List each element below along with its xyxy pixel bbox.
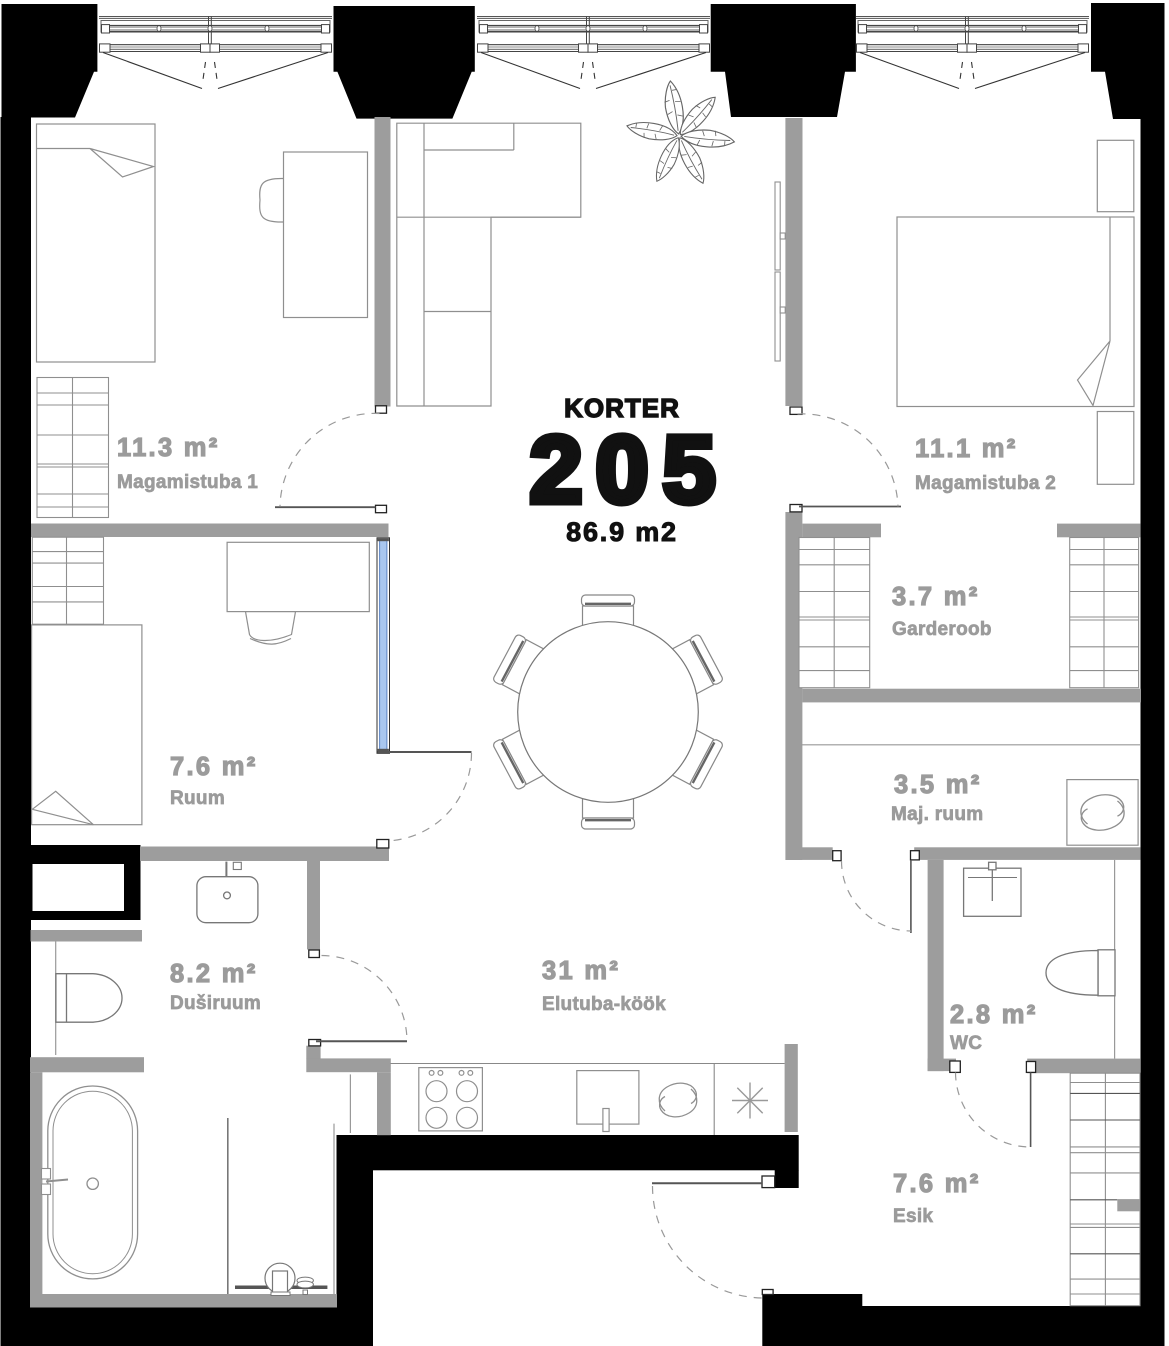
svg-text:Ruum: Ruum (170, 788, 225, 809)
svg-text:31 m²: 31 m² (542, 957, 620, 985)
svg-text:0: 0 (596, 417, 649, 523)
svg-text:7.6 m²: 7.6 m² (893, 1170, 981, 1198)
svg-text:2.8 m²: 2.8 m² (950, 1001, 1038, 1029)
svg-text:Maj. ruum: Maj. ruum (891, 804, 983, 825)
svg-text:5: 5 (663, 417, 716, 523)
svg-text:Duširuum: Duširuum (170, 993, 261, 1014)
svg-text:7.6 m²: 7.6 m² (170, 753, 258, 781)
svg-text:11.3 m²: 11.3 m² (117, 434, 220, 462)
svg-text:Magamistuba 2: Magamistuba 2 (915, 473, 1056, 494)
svg-text:3.7 m²: 3.7 m² (892, 583, 980, 611)
svg-text:86.9 m2: 86.9 m2 (566, 517, 678, 547)
svg-text:8.2 m²: 8.2 m² (170, 960, 258, 988)
svg-text:Magamistuba 1: Magamistuba 1 (117, 472, 258, 493)
svg-text:2: 2 (530, 417, 583, 523)
svg-text:Elutuba-köök: Elutuba-köök (542, 994, 666, 1015)
svg-text:3.5 m²: 3.5 m² (894, 771, 982, 799)
svg-text:11.1 m²: 11.1 m² (915, 435, 1018, 463)
svg-text:Esik: Esik (893, 1206, 933, 1227)
svg-text:Garderoob: Garderoob (892, 619, 992, 640)
svg-text:WC: WC (950, 1033, 982, 1054)
